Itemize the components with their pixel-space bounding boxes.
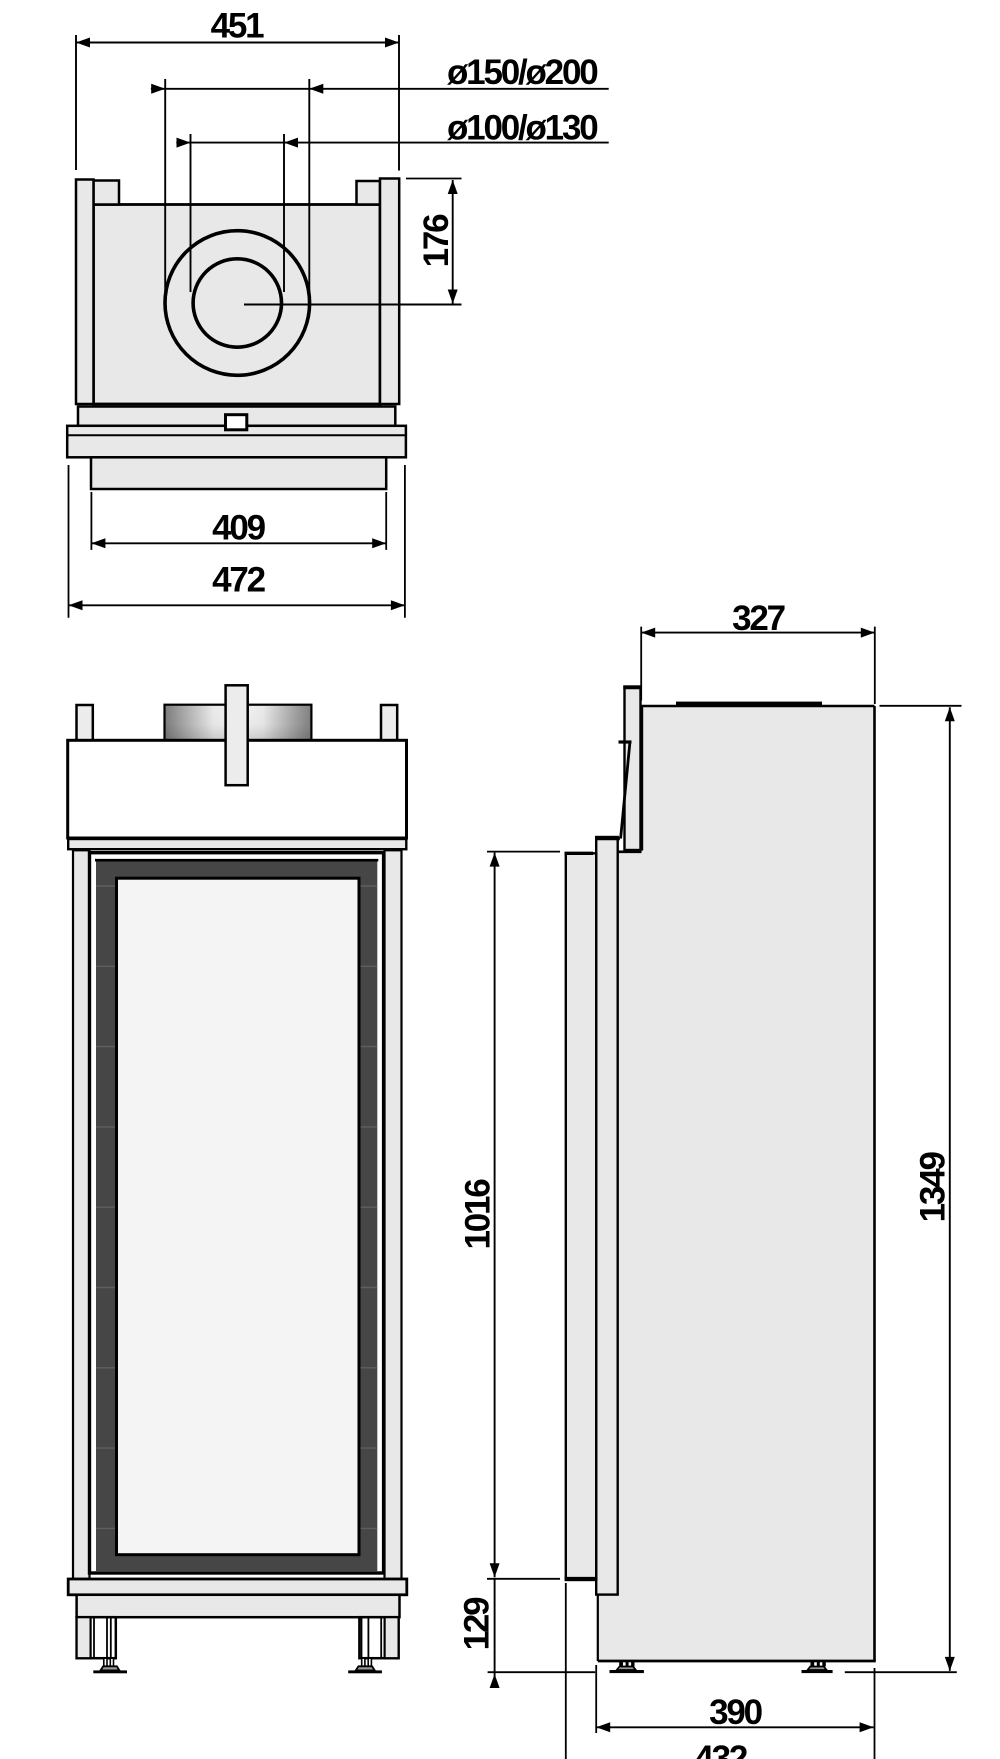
svg-text:472: 472 bbox=[212, 561, 266, 600]
svg-text:409: 409 bbox=[212, 509, 266, 548]
svg-text:ø150/ø200: ø150/ø200 bbox=[447, 53, 598, 92]
svg-text:176: 176 bbox=[417, 214, 456, 268]
svg-text:451: 451 bbox=[211, 7, 265, 46]
svg-text:327: 327 bbox=[732, 599, 785, 638]
svg-text:ø100/ø130: ø100/ø130 bbox=[447, 108, 598, 147]
svg-text:1016: 1016 bbox=[459, 1179, 498, 1250]
svg-text:129: 129 bbox=[458, 1597, 497, 1651]
svg-text:1349: 1349 bbox=[914, 1152, 953, 1223]
svg-text:390: 390 bbox=[709, 1693, 763, 1732]
svg-text:432: 432 bbox=[694, 1739, 748, 1759]
